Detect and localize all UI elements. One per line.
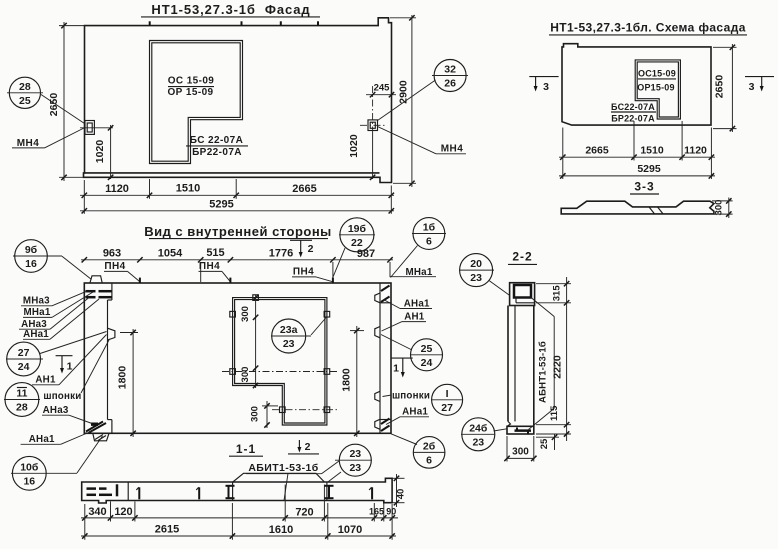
- svg-text:БР22-07А: БР22-07А: [611, 113, 655, 123]
- svg-text:6: 6: [426, 236, 432, 248]
- svg-text:24: 24: [421, 357, 433, 369]
- svg-text:120: 120: [114, 506, 132, 518]
- svg-text:МНа3: МНа3: [23, 295, 50, 306]
- svg-text:1510: 1510: [176, 183, 200, 195]
- svg-text:ОР 15-09: ОР 15-09: [167, 87, 213, 98]
- svg-text:10б: 10б: [20, 461, 39, 473]
- svg-text:2650: 2650: [48, 93, 60, 117]
- svg-text:32: 32: [444, 64, 456, 76]
- svg-text:1776: 1776: [269, 248, 293, 260]
- svg-text:26: 26: [444, 78, 456, 90]
- svg-text:1-1: 1-1: [236, 442, 256, 456]
- svg-text:22: 22: [351, 237, 363, 249]
- svg-text:315: 315: [552, 285, 563, 302]
- svg-text:16: 16: [25, 258, 37, 270]
- svg-text:2900: 2900: [398, 80, 410, 104]
- svg-text:МНа1: МНа1: [24, 307, 51, 318]
- svg-text:АБНТ1-53-1б: АБНТ1-53-1б: [538, 341, 549, 403]
- svg-text:НТ1-53,27.3-1б Фасад: НТ1-53,27.3-1б Фасад: [151, 2, 310, 17]
- svg-text:25: 25: [421, 343, 433, 355]
- svg-text:20: 20: [470, 258, 482, 270]
- svg-text:23: 23: [349, 462, 361, 474]
- svg-text:5295: 5295: [637, 163, 661, 175]
- svg-text:11: 11: [16, 388, 27, 400]
- svg-text:1020: 1020: [94, 140, 106, 164]
- svg-text:АНа3: АНа3: [43, 405, 69, 416]
- svg-text:ПН4: ПН4: [104, 261, 125, 272]
- svg-text:2б: 2б: [423, 440, 436, 452]
- svg-text:300: 300: [512, 447, 529, 458]
- svg-text:300: 300: [240, 367, 251, 383]
- svg-text:АН1: АН1: [404, 311, 425, 322]
- svg-text:23а: 23а: [280, 324, 298, 336]
- svg-text:2-2: 2-2: [512, 250, 532, 264]
- svg-text:165: 165: [369, 506, 384, 516]
- svg-text:90: 90: [386, 506, 396, 516]
- svg-text:2665: 2665: [292, 183, 316, 195]
- svg-text:300: 300: [250, 406, 261, 422]
- svg-text:5295: 5295: [209, 198, 233, 210]
- svg-text:I: I: [446, 388, 449, 400]
- svg-text:1610: 1610: [269, 524, 293, 536]
- svg-text:1510: 1510: [640, 145, 664, 157]
- svg-text:27: 27: [441, 402, 453, 414]
- svg-text:27: 27: [18, 347, 30, 359]
- svg-text:115: 115: [549, 405, 560, 421]
- svg-text:2615: 2615: [155, 524, 179, 536]
- svg-text:25: 25: [539, 438, 550, 449]
- svg-text:24б: 24б: [469, 422, 488, 434]
- svg-text:23: 23: [470, 272, 482, 284]
- svg-text:БС 22-07А: БС 22-07А: [190, 135, 243, 146]
- svg-text:МН4: МН4: [17, 138, 40, 149]
- svg-text:шпонки: шпонки: [43, 391, 81, 402]
- svg-text:ОС15-09: ОС15-09: [638, 69, 676, 79]
- svg-text:ОР15-09: ОР15-09: [637, 83, 674, 93]
- svg-text:2665: 2665: [585, 145, 609, 157]
- svg-text:963: 963: [103, 248, 121, 260]
- svg-text:6: 6: [426, 454, 432, 466]
- svg-text:1070: 1070: [338, 524, 362, 536]
- svg-text:АБИТ1-53-1б: АБИТ1-53-1б: [248, 462, 318, 474]
- svg-text:2: 2: [308, 243, 314, 255]
- svg-text:АНа1: АНа1: [402, 407, 428, 418]
- svg-text:720: 720: [295, 506, 313, 518]
- svg-text:2650: 2650: [714, 75, 726, 99]
- svg-text:1120: 1120: [105, 183, 129, 195]
- svg-text:АНа1: АНа1: [23, 329, 49, 340]
- svg-text:БС22-07А: БС22-07А: [611, 102, 655, 112]
- svg-text:245: 245: [374, 83, 391, 94]
- svg-text:ПН4: ПН4: [293, 267, 314, 278]
- svg-text:23: 23: [472, 436, 484, 448]
- svg-text:24: 24: [18, 361, 30, 373]
- svg-text:1120: 1120: [684, 145, 707, 157]
- svg-text:25: 25: [19, 95, 31, 107]
- svg-text:3: 3: [749, 81, 755, 93]
- svg-text:1б: 1б: [423, 222, 436, 234]
- svg-text:1054: 1054: [158, 248, 183, 260]
- svg-text:9б: 9б: [25, 244, 38, 256]
- svg-text:515: 515: [206, 247, 224, 259]
- svg-text:23: 23: [349, 448, 361, 460]
- svg-text:40: 40: [396, 489, 407, 500]
- svg-text:БР22-07А: БР22-07А: [192, 147, 242, 158]
- svg-text:ОС 15-09: ОС 15-09: [168, 76, 215, 87]
- svg-text:1800: 1800: [117, 366, 129, 390]
- svg-text:НТ1-53,27.3-1бл. Схема фасада: НТ1-53,27.3-1бл. Схема фасада: [550, 21, 746, 35]
- svg-text:1800: 1800: [341, 368, 353, 392]
- svg-text:АНа1: АНа1: [404, 298, 430, 309]
- svg-text:МН4: МН4: [441, 144, 464, 155]
- svg-text:АН1: АН1: [35, 375, 56, 386]
- svg-text:ПН4: ПН4: [199, 261, 220, 272]
- svg-text:Вид с внутренней стороны: Вид с внутренней стороны: [144, 224, 332, 239]
- svg-text:шпонки: шпонки: [392, 391, 430, 402]
- svg-text:340: 340: [88, 506, 106, 518]
- svg-text:2: 2: [305, 441, 311, 453]
- svg-text:300: 300: [714, 200, 725, 216]
- svg-text:23: 23: [283, 338, 295, 350]
- svg-text:19б: 19б: [348, 223, 367, 235]
- svg-text:АНа1: АНа1: [29, 434, 55, 445]
- svg-text:28: 28: [16, 402, 28, 414]
- svg-text:1020: 1020: [348, 134, 360, 158]
- svg-text:3: 3: [543, 81, 549, 93]
- svg-text:2220: 2220: [552, 355, 564, 379]
- svg-text:16: 16: [23, 475, 35, 487]
- svg-text:28: 28: [19, 81, 31, 93]
- svg-text:300: 300: [240, 306, 251, 322]
- svg-text:3-3: 3-3: [634, 180, 654, 194]
- svg-text:1: 1: [393, 363, 399, 375]
